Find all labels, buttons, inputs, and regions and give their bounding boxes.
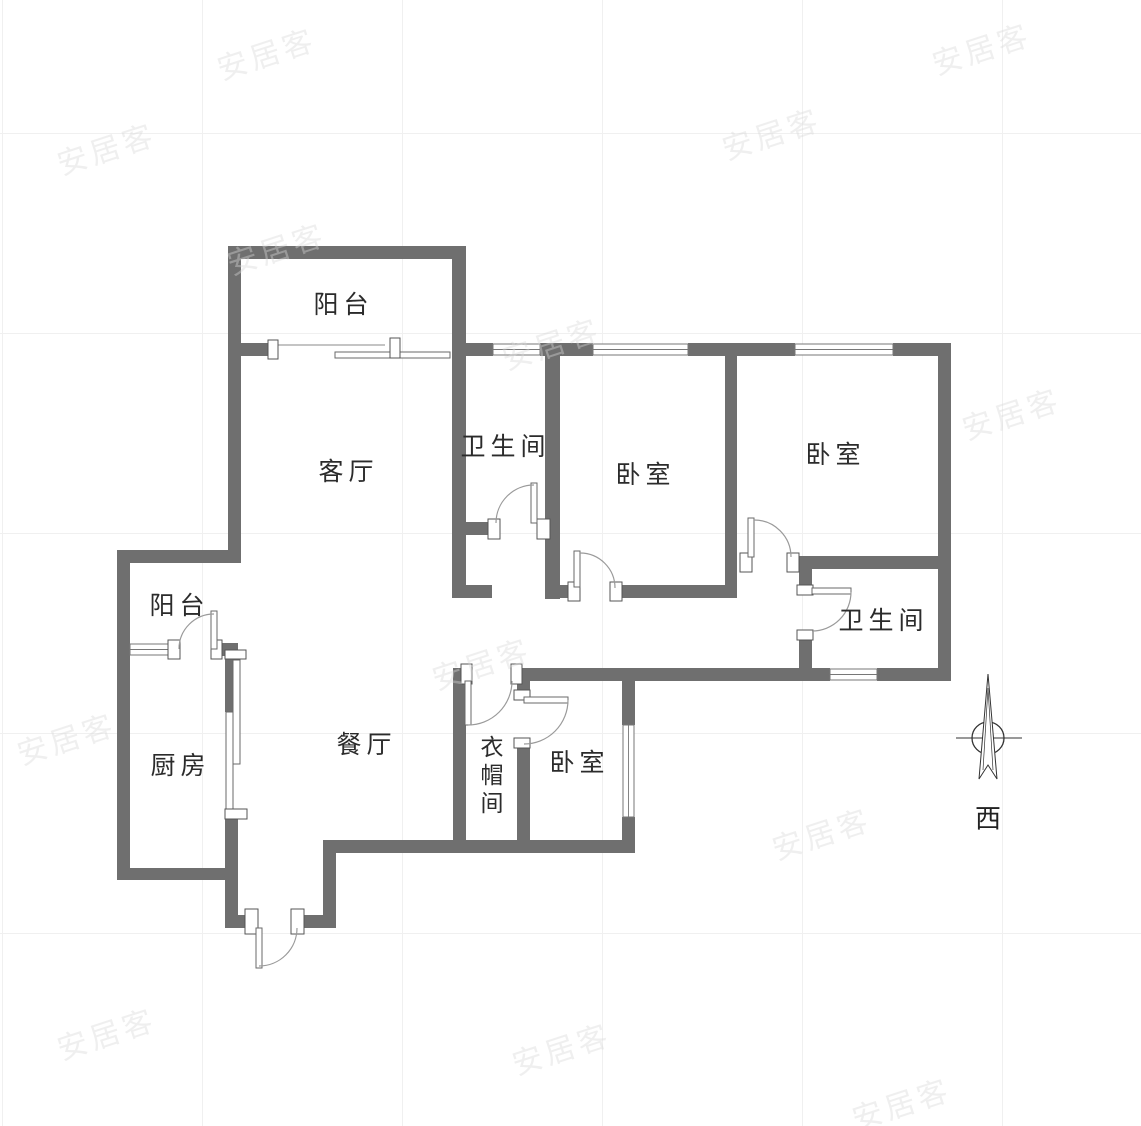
door-bedroom-1 — [574, 551, 615, 588]
room-label-living-room: 客厅 — [313, 452, 378, 488]
room-label-bathroom-1: 卫生间 — [455, 427, 550, 463]
compass-icon — [956, 674, 1022, 779]
door-bathroom-1 — [496, 483, 537, 523]
room-label-bathroom-2: 卫生间 — [833, 601, 928, 637]
windows — [130, 344, 893, 817]
room-label-bedroom-3: 卧室 — [544, 743, 609, 779]
sliding-door-balcony-living — [278, 345, 450, 358]
room-label-dining-room: 餐厅 — [331, 725, 396, 761]
window-bedroom-3-east — [623, 725, 634, 817]
room-label-balcony-north: 阳台 — [308, 285, 373, 321]
room-label-balcony-west: 阳台 — [144, 586, 209, 622]
window-bathroom-1-north — [493, 344, 540, 355]
window-bedroom-2-north — [795, 344, 893, 355]
floor-plan: 阳台 客厅 卫生间 卧室 卧室 卫生间 阳台 厨房 餐厅 衣帽间 卧室 西 安居… — [0, 0, 1141, 1126]
room-label-kitchen: 厨房 — [145, 746, 210, 782]
room-label-bedroom-2: 卧室 — [800, 435, 865, 471]
door-swings — [179, 483, 851, 968]
door-bedroom-3 — [524, 697, 568, 744]
window-kitchen-balcony — [130, 644, 168, 655]
compass-west-label: 西 — [975, 799, 1001, 836]
floor-plan-drawing — [0, 0, 1141, 1126]
room-label-bedroom-1: 卧室 — [610, 455, 675, 491]
door-bedroom-2 — [748, 518, 791, 557]
window-bedroom-1-north — [593, 344, 688, 355]
door-closet — [465, 681, 512, 725]
window-bathroom-2-south — [830, 669, 877, 680]
room-label-closet: 衣帽间 — [472, 735, 506, 819]
